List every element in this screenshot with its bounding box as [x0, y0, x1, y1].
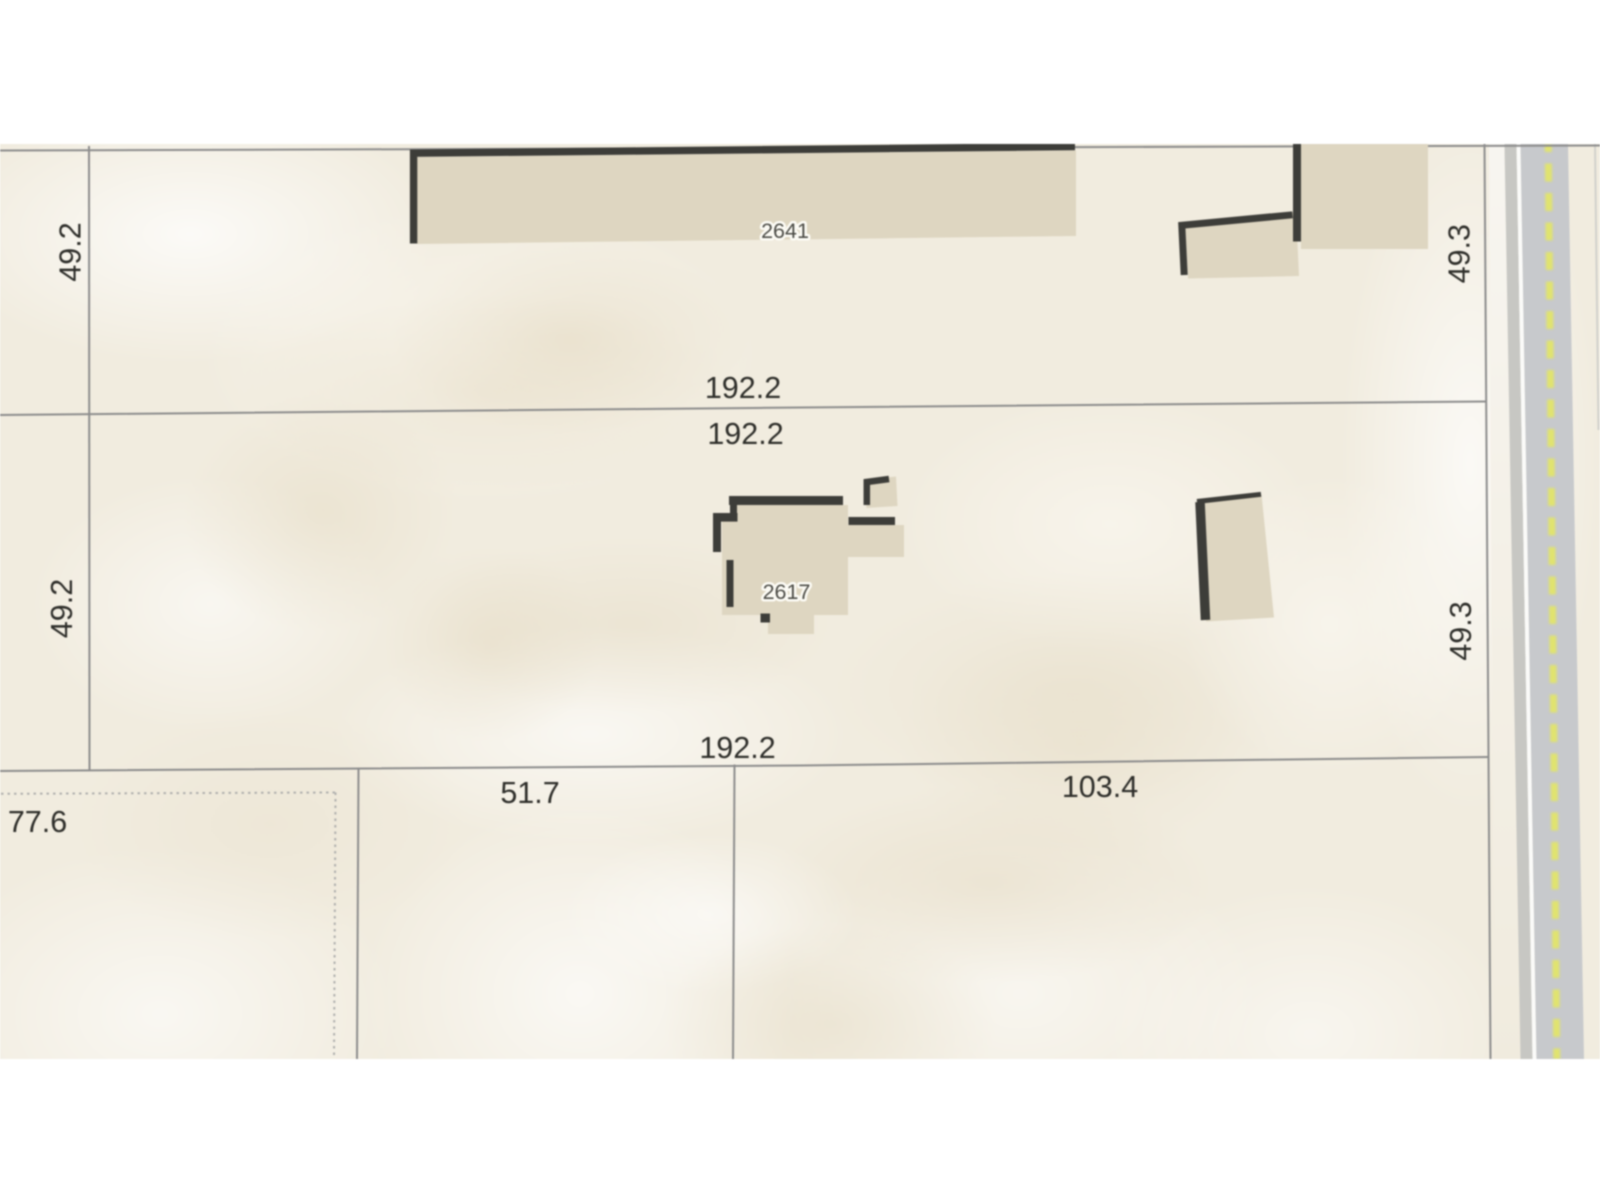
- svg-text:51.7: 51.7: [500, 776, 559, 810]
- svg-text:49.3: 49.3: [1444, 601, 1478, 660]
- svg-text:192.2: 192.2: [705, 371, 781, 405]
- svg-text:49.2: 49.2: [53, 222, 87, 281]
- svg-text:77.6: 77.6: [8, 805, 67, 839]
- svg-text:103.4: 103.4: [1062, 770, 1138, 804]
- svg-text:192.2: 192.2: [699, 731, 775, 765]
- svg-text:49.3: 49.3: [1443, 224, 1477, 283]
- svg-text:2641: 2641: [761, 219, 809, 243]
- svg-text:2617: 2617: [763, 580, 811, 604]
- svg-text:49.2: 49.2: [45, 579, 79, 638]
- svg-text:192.2: 192.2: [707, 417, 783, 451]
